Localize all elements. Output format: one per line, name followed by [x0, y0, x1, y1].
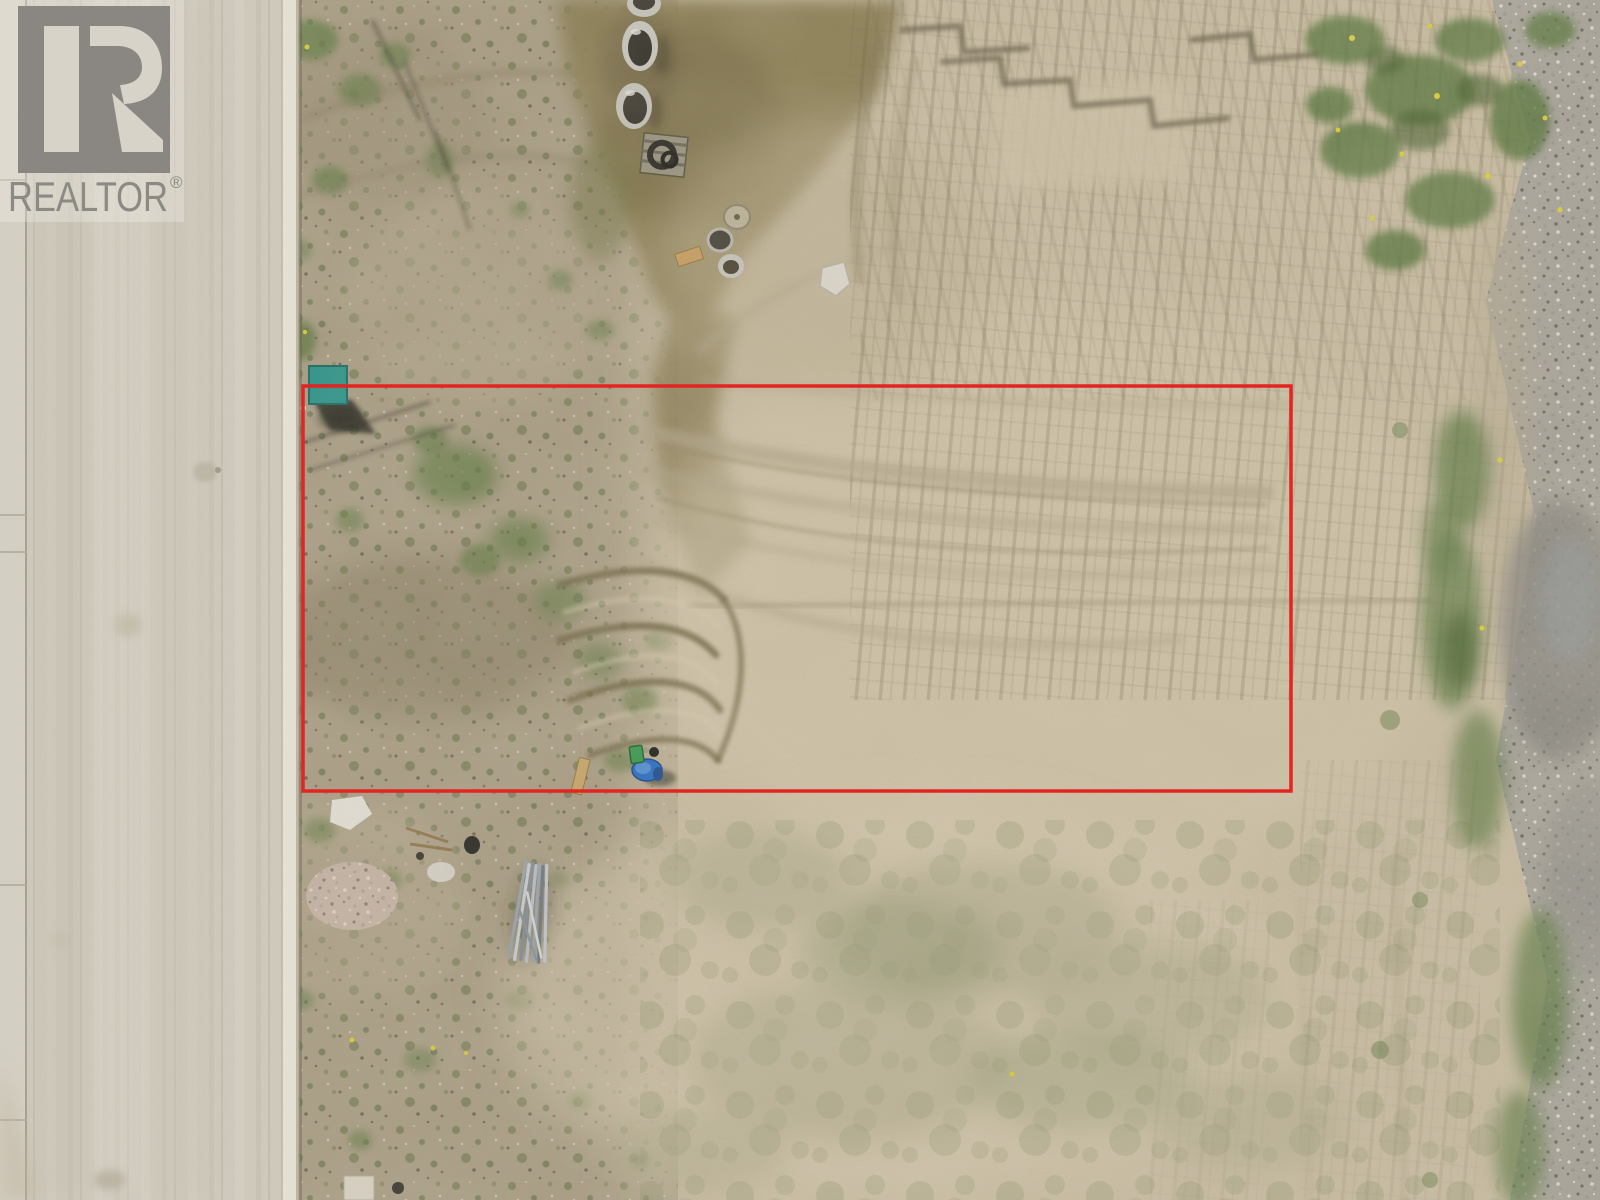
photo-grain — [0, 0, 1600, 1200]
realtor-logo: REALTOR ® — [0, 0, 210, 235]
registered-trademark-symbol: ® — [170, 173, 183, 192]
aerial-photo-vacant-lot: REALTOR ® — [0, 0, 1600, 1200]
realtor-watermark: REALTOR ® — [0, 0, 210, 235]
watermark-brand-text: REALTOR — [8, 173, 168, 220]
terrain-scene — [0, 0, 1600, 1200]
